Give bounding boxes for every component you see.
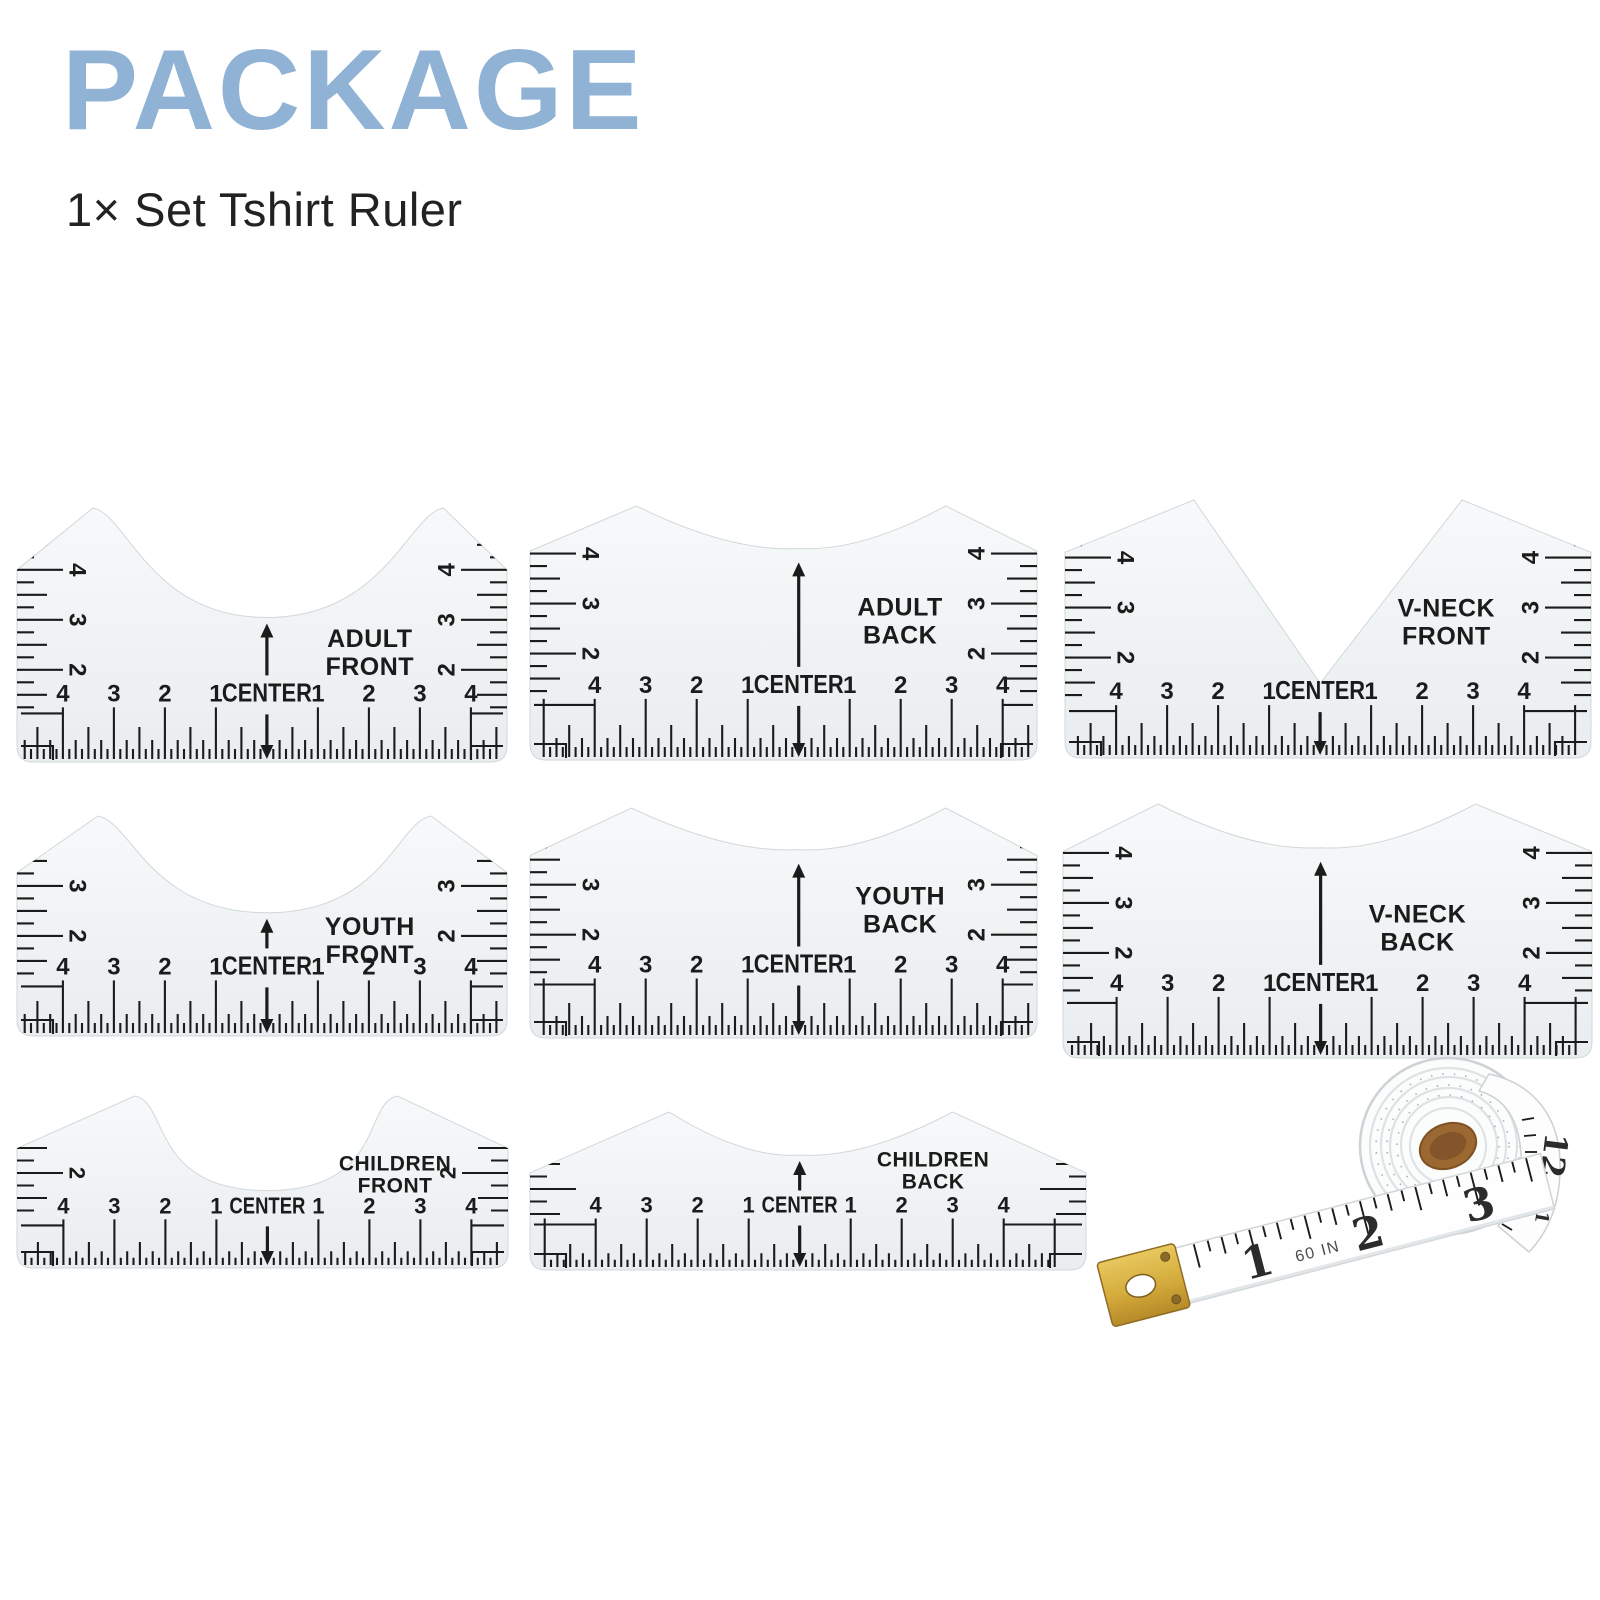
ruler-label-line1: V-NECK [1369,901,1466,929]
svg-text:3: 3 [1466,678,1479,705]
svg-text:4: 4 [1109,678,1123,705]
ruler-body [530,808,1037,1038]
svg-text:3: 3 [1161,970,1174,997]
svg-text:4: 4 [1112,551,1139,565]
tape-metal-tab [1097,1243,1191,1327]
svg-text:2: 2 [1112,651,1139,664]
ruler-label-line1: CHILDREN [339,1152,452,1175]
svg-text:1: 1 [843,672,856,699]
svg-text:3: 3 [577,597,604,610]
ruler-label-line1: YOUTH [325,913,415,941]
svg-text:2: 2 [1110,946,1137,959]
ruler-vneck-front: 4433224321CENTER1234V-NECKFRONT [1062,490,1594,764]
svg-text:4: 4 [1517,678,1531,705]
svg-text:4: 4 [433,562,460,576]
svg-text:1: 1 [1364,678,1377,705]
ruler-youth-back: 33224321CENTER1234YOUTHBACK [527,798,1040,1044]
svg-text:2: 2 [433,663,460,676]
ruler-label-line1: ADULT [327,625,412,653]
svg-text:1: 1 [845,1192,857,1217]
svg-text:3: 3 [1110,896,1137,909]
svg-text:2: 2 [1518,946,1545,959]
svg-text:2: 2 [1212,970,1225,997]
svg-text:4: 4 [1518,846,1545,860]
svg-text:4: 4 [465,1193,478,1218]
center-label: CENTER [754,948,844,978]
svg-text:4: 4 [577,547,604,561]
svg-text:2: 2 [894,672,907,699]
svg-text:2: 2 [577,647,604,660]
svg-text:4: 4 [996,672,1010,699]
svg-text:4: 4 [590,1192,603,1217]
svg-text:4: 4 [588,951,602,978]
svg-text:3: 3 [1112,601,1139,614]
ruler-adult-front: 4433224321CENTER1234ADULTFRONT [14,498,510,768]
page-title: PACKAGE [62,34,645,148]
svg-text:2: 2 [1416,970,1429,997]
svg-text:3: 3 [639,672,652,699]
svg-text:1: 1 [843,951,856,978]
ruler-label-line2: FRONT [325,941,414,969]
svg-text:3: 3 [413,680,426,707]
svg-text:1: 1 [311,680,324,707]
svg-text:3: 3 [434,879,461,892]
svg-text:3: 3 [108,1193,120,1218]
center-label: CENTER [229,1192,305,1218]
svg-text:4: 4 [1110,970,1124,997]
svg-text:4: 4 [588,672,602,699]
svg-text:2: 2 [1211,678,1224,705]
page-subtitle: 1× Set Tshirt Ruler [66,182,463,237]
svg-text:3: 3 [947,1192,959,1217]
svg-text:3: 3 [641,1192,653,1217]
svg-text:2: 2 [158,953,171,980]
svg-text:1: 1 [741,672,754,699]
center-label: CENTER [754,669,844,699]
ruler-label-line1: V-NECK [1398,595,1495,623]
ruler-youth-front: 33224321CENTER1234YOUTHFRONT [14,806,510,1042]
ruler-label-line2: BACK [863,911,937,939]
svg-text:3: 3 [945,951,958,978]
ruler-label-line2: BACK [1380,929,1454,957]
svg-text:1: 1 [209,953,222,980]
svg-text:3: 3 [413,953,426,980]
ruler-body [530,506,1037,760]
ruler-label-line2: FRONT [325,653,414,681]
svg-text:1: 1 [311,953,324,980]
svg-text:3: 3 [107,953,120,980]
svg-text:3: 3 [433,613,460,626]
svg-text:4: 4 [56,953,70,980]
svg-text:1: 1 [1365,970,1378,997]
svg-text:2: 2 [964,928,991,941]
svg-text:2: 2 [964,647,991,660]
svg-text:1: 1 [1262,678,1275,705]
svg-text:4: 4 [56,680,70,707]
center-label: CENTER [1276,967,1366,997]
tape-measure-graphic: 121112360 IN [1085,1058,1600,1343]
ruler-label-line1: ADULT [857,594,942,622]
center-label: CENTER [222,677,312,707]
svg-text:3: 3 [964,597,991,610]
svg-text:2: 2 [690,951,703,978]
svg-text:3: 3 [576,878,603,891]
ruler-label-line2: FRONT [358,1174,433,1197]
svg-text:3: 3 [63,879,90,892]
svg-text:2: 2 [159,1193,171,1218]
svg-text:2: 2 [576,928,603,941]
svg-text:2: 2 [158,680,171,707]
svg-text:4: 4 [1518,970,1532,997]
svg-text:3: 3 [945,672,958,699]
ruler-body [17,816,507,1036]
ruler-label-line1: CHILDREN [877,1148,990,1171]
ruler-body [1063,804,1592,1058]
ruler-children-front: 224321CENTER1234CHILDRENFRONT [14,1086,511,1274]
ruler-label-line1: YOUTH [855,883,945,911]
center-label: CENTER [1275,675,1365,705]
svg-text:1: 1 [743,1192,755,1217]
svg-text:1: 1 [312,1193,324,1218]
svg-text:4: 4 [998,1192,1011,1217]
ruler-adult-back: 4433224321CENTER1234ADULTBACK [527,496,1040,766]
center-label: CENTER [222,950,312,980]
ruler-children-back: 4321CENTER1234CHILDRENBACK [527,1102,1089,1276]
tape-strip: 12360 IN [1097,1149,1556,1327]
svg-text:2: 2 [894,951,907,978]
svg-text:2: 2 [1415,678,1428,705]
ruler-label-line2: FRONT [1402,623,1491,651]
svg-text:3: 3 [639,951,652,978]
svg-text:2: 2 [434,929,461,942]
svg-text:4: 4 [964,546,991,560]
ruler-vneck-back: 4433224321CENTER1234V-NECKBACK [1060,794,1595,1064]
svg-text:3: 3 [1518,896,1545,909]
svg-text:2: 2 [362,680,375,707]
ruler-label-line2: BACK [902,1170,965,1193]
svg-text:2: 2 [63,929,90,942]
svg-text:4: 4 [996,951,1010,978]
svg-text:4: 4 [464,680,478,707]
svg-text:1: 1 [741,951,754,978]
svg-text:2: 2 [64,663,91,676]
svg-text:3: 3 [1467,970,1480,997]
svg-text:3: 3 [964,878,991,891]
svg-text:1: 1 [209,680,222,707]
product-image: PACKAGE 1× Set Tshirt Ruler 4433224321CE… [0,0,1600,1600]
ruler-body [17,1096,508,1268]
svg-text:2: 2 [896,1192,908,1217]
svg-text:4: 4 [1110,846,1137,860]
svg-text:1: 1 [1263,970,1276,997]
svg-text:1: 1 [210,1193,222,1218]
svg-text:4: 4 [464,953,478,980]
svg-text:2: 2 [1517,651,1544,664]
svg-text:2: 2 [65,1167,90,1179]
svg-text:3: 3 [1160,678,1173,705]
ruler-label-line2: BACK [863,622,937,650]
svg-text:3: 3 [107,680,120,707]
svg-text:2: 2 [690,672,703,699]
center-label: CENTER [762,1191,838,1217]
svg-text:4: 4 [64,563,91,577]
svg-text:3: 3 [1517,601,1544,614]
svg-text:4: 4 [1517,550,1544,564]
ruler-body [1065,500,1591,758]
svg-text:4: 4 [57,1193,70,1218]
svg-text:3: 3 [64,613,91,626]
svg-text:2: 2 [692,1192,704,1217]
